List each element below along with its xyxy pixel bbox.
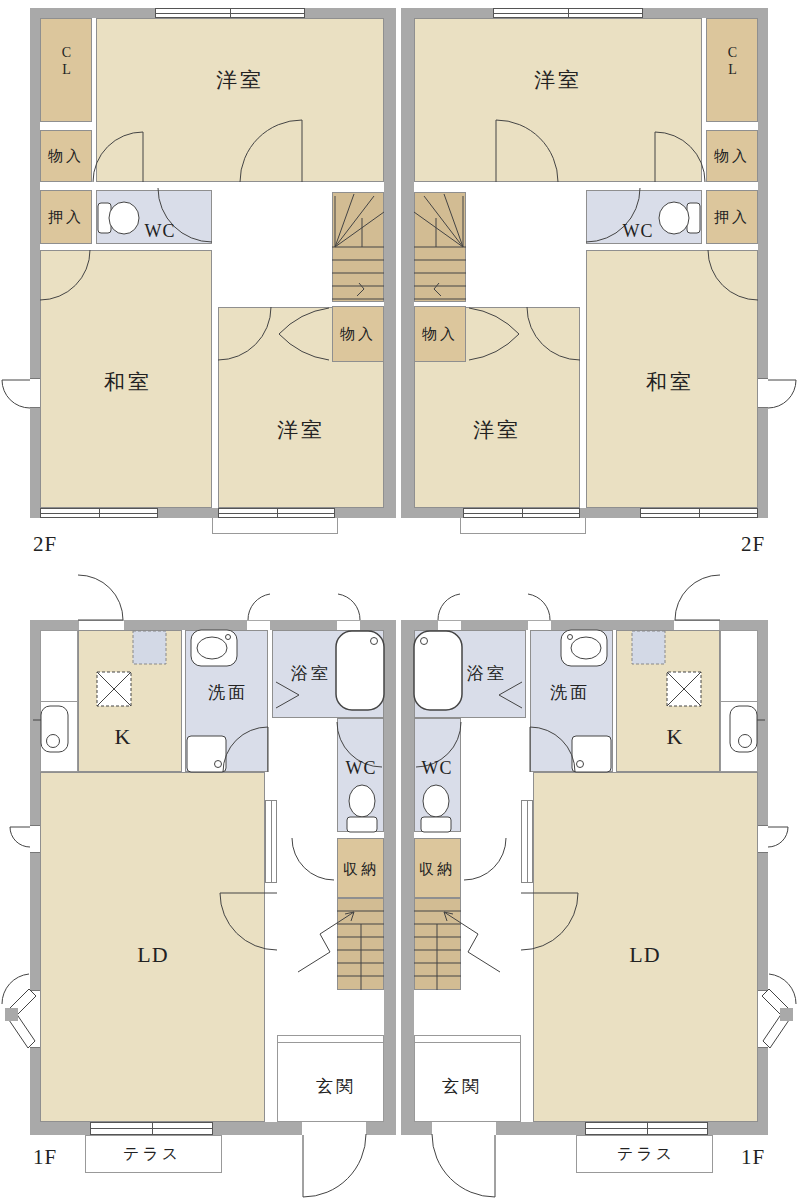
front-door-opening-right bbox=[432, 1122, 496, 1135]
label-storage-left: 物入 bbox=[340, 325, 376, 344]
label-entrance-left: 玄関 bbox=[316, 1075, 356, 1098]
window-1f-bottom-ld-right bbox=[585, 1122, 708, 1135]
room-kitchen-right bbox=[616, 630, 720, 772]
kitchen-counter-left bbox=[40, 630, 78, 772]
window-2f-bottom-center-left bbox=[218, 508, 335, 518]
floor-label-right: 2F bbox=[741, 532, 765, 557]
label-closet-right: CL bbox=[724, 45, 740, 79]
label-toilet-left: WC bbox=[346, 758, 377, 779]
label-stair_storage-right: 収納 bbox=[419, 860, 455, 879]
label-stair_storage-left: 収納 bbox=[343, 860, 379, 879]
balcony-2f-right bbox=[460, 518, 586, 534]
window-2f-top-left bbox=[155, 8, 305, 18]
label-bathroom-left: 浴室 bbox=[291, 662, 331, 685]
label-toilet-right: WC bbox=[623, 221, 654, 242]
side-window-2f-opening-right bbox=[758, 378, 768, 408]
window-2f-top-right bbox=[493, 8, 643, 18]
label-entrance-right: 玄関 bbox=[442, 1075, 482, 1098]
label-kitchen-right: K bbox=[667, 724, 684, 750]
bay-window-opening-left bbox=[30, 990, 40, 1048]
room-western-top-right bbox=[414, 18, 702, 182]
room-stairs-1f-left bbox=[337, 898, 384, 990]
floor-label-left: 2F bbox=[33, 532, 57, 557]
label-bathroom-right: 浴室 bbox=[467, 662, 507, 685]
wall-1f-party-gap bbox=[396, 620, 401, 1135]
room-western-top-left bbox=[96, 18, 384, 182]
floor-plan-canvas: 洋室洋室CLCL物入物入押入押入WCWC和室和室物入物入洋室洋室KK洗面洗面浴室… bbox=[0, 0, 798, 1200]
washroom-window-opening-right bbox=[528, 621, 551, 630]
wall-2f-party-gap bbox=[396, 8, 401, 518]
label-living_dining-right: LD bbox=[629, 942, 660, 968]
label-oshiire-right: 押入 bbox=[714, 208, 750, 227]
label-washroom-right: 洗面 bbox=[550, 681, 590, 704]
label-western_room-right: 洋室 bbox=[534, 66, 582, 94]
label-western_room-left: 洋室 bbox=[216, 66, 264, 94]
washroom-window-opening-left bbox=[247, 621, 270, 630]
label-storage-right: 物入 bbox=[714, 147, 750, 166]
bay-window-opening-right bbox=[758, 990, 768, 1048]
floor-label-left: 1F bbox=[33, 1145, 57, 1170]
bath-window-opening-right bbox=[438, 621, 461, 630]
ld-window-opening-right bbox=[758, 825, 768, 853]
kitchen-door-opening-left bbox=[79, 621, 124, 630]
label-storage-left: 物入 bbox=[48, 147, 84, 166]
label-closet-left: CL bbox=[58, 45, 74, 79]
window-2f-bottom-left-right bbox=[640, 508, 758, 518]
room-stairs-1f-right bbox=[414, 898, 461, 990]
ld-window-opening-left bbox=[30, 825, 40, 853]
label-toilet-right: WC bbox=[422, 758, 453, 779]
label-western_room-left: 洋室 bbox=[277, 416, 325, 444]
label-toilet-left: WC bbox=[145, 221, 176, 242]
kitchen-door-opening-right bbox=[674, 621, 719, 630]
window-2f-bottom-center-right bbox=[463, 508, 580, 518]
label-japanese_room-left: 和室 bbox=[104, 368, 152, 396]
window-1f-bottom-ld-left bbox=[90, 1122, 213, 1135]
room-stairs-2f-left bbox=[332, 192, 384, 302]
label-japanese_room-right: 和室 bbox=[646, 368, 694, 396]
hall-window-strip-left bbox=[265, 800, 277, 883]
floor-label-right: 1F bbox=[741, 1145, 765, 1170]
label-storage-right: 物入 bbox=[422, 325, 458, 344]
label-oshiire-left: 押入 bbox=[48, 208, 84, 227]
kitchen-counter-right bbox=[720, 630, 758, 772]
hall-window-strip-right bbox=[521, 800, 533, 883]
label-kitchen-left: K bbox=[115, 724, 132, 750]
bath-window-opening-left bbox=[337, 621, 360, 630]
front-door-opening-left bbox=[302, 1122, 366, 1135]
label-terrace-right: テラス bbox=[617, 1144, 675, 1165]
label-western_room-right: 洋室 bbox=[473, 416, 521, 444]
balcony-2f-left bbox=[212, 518, 338, 534]
window-2f-bottom-left-left bbox=[40, 508, 158, 518]
room-stairs-2f-right bbox=[414, 192, 466, 302]
label-washroom-left: 洗面 bbox=[208, 681, 248, 704]
label-terrace-left: テラス bbox=[123, 1144, 181, 1165]
room-kitchen-left bbox=[78, 630, 182, 772]
side-window-2f-opening-left bbox=[30, 378, 40, 408]
label-living_dining-left: LD bbox=[137, 942, 168, 968]
